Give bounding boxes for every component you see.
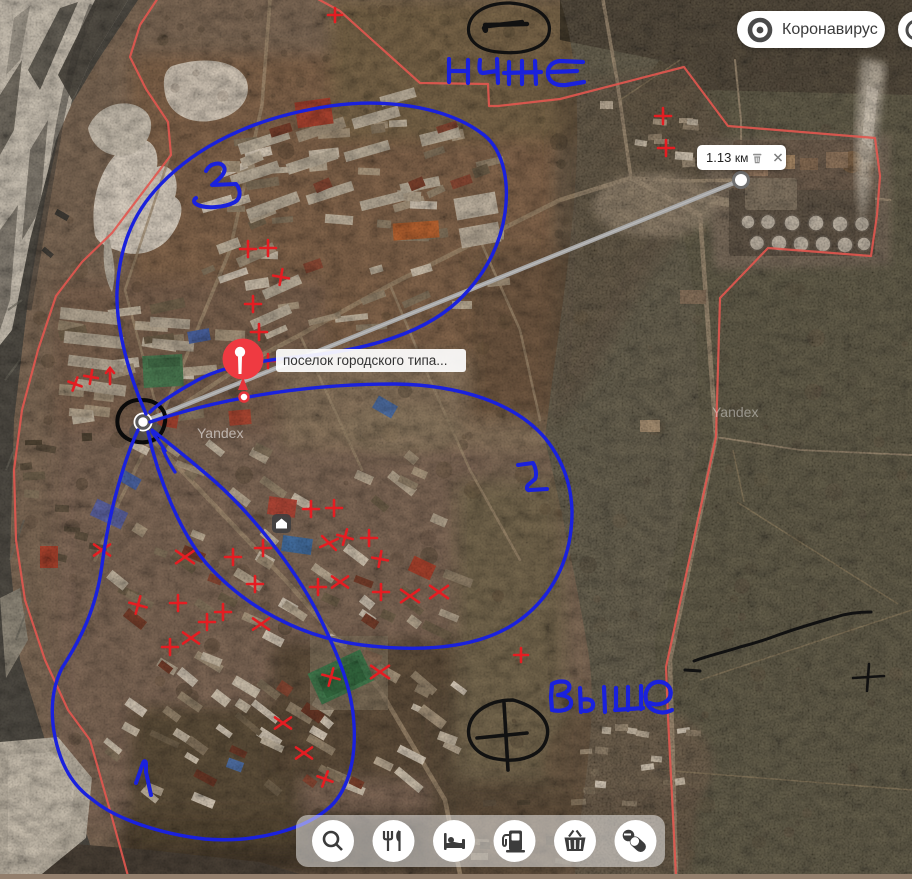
svg-text:Yandex: Yandex xyxy=(712,404,758,420)
svg-text:Yandex: Yandex xyxy=(197,425,243,441)
